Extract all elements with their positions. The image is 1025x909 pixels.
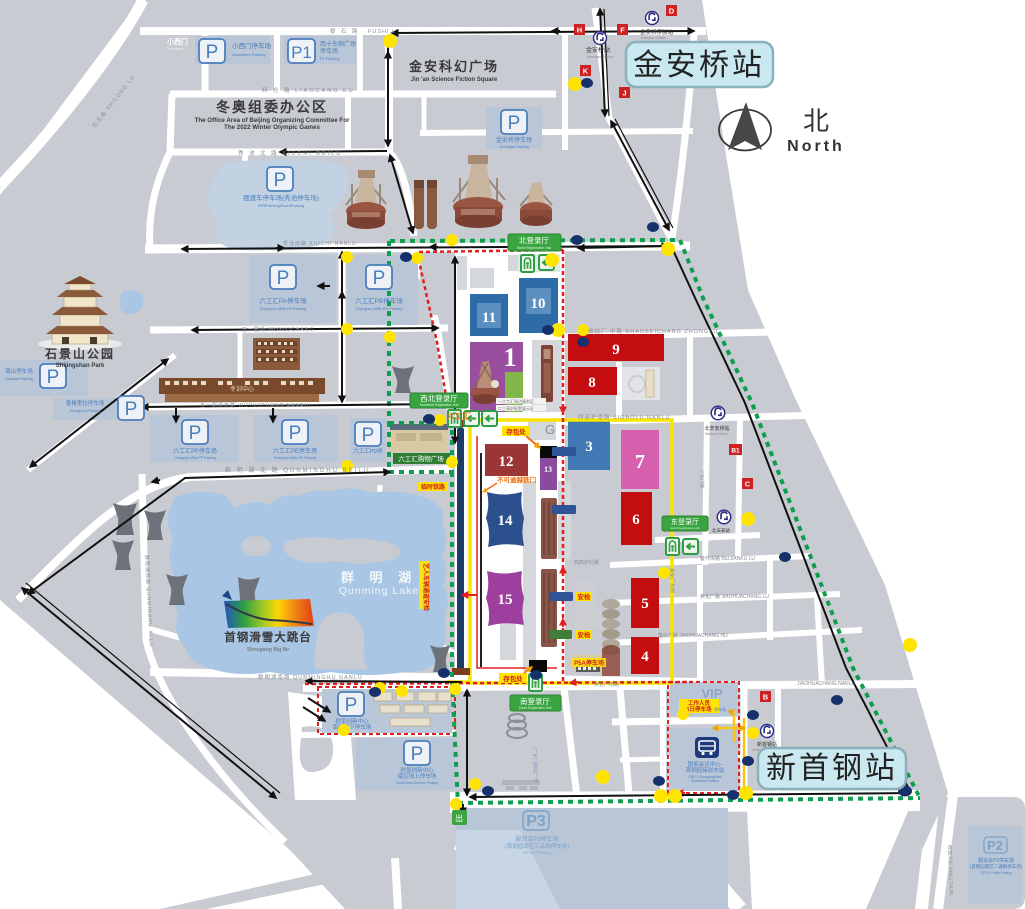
svg-text:焦化厂路 JIAOHUACHANG LU: 焦化厂路 JIAOHUACHANG LU (700, 593, 769, 600)
svg-text:P3: P3 (526, 813, 546, 830)
svg-text:金安桥站: 金安桥站 (586, 46, 610, 54)
svg-text:六工汇PA停车场: 六工汇PA停车场 (259, 296, 307, 305)
svg-text:南山停车场: 南山停车场 (5, 367, 33, 375)
svg-text:(首钢园南区二通钢停车场): (首钢园南区二通钢停车场) (970, 863, 1023, 870)
svg-text:B: B (763, 693, 769, 702)
svg-text:P2: P2 (987, 838, 1003, 853)
svg-text:P1: P1 (291, 43, 312, 62)
svg-text:首钢滑雪大跳台: 首钢滑雪大跳台 (224, 630, 312, 644)
svg-text:六工汇PB停车场: 六工汇PB停车场 (355, 296, 403, 305)
svg-text:Xiaoximen Parking: Xiaoximen Parking (232, 52, 265, 57)
svg-text:Beixinan Station: Beixinan Station (705, 432, 728, 436)
svg-text:Chang'an Mills PB Parking: Chang'an Mills PB Parking (355, 306, 402, 311)
svg-text:料 仓 路 LIAOCANG EU: 料 仓 路 LIAOCANG EU (262, 86, 355, 94)
svg-text:北辛安桥站: 北辛安桥站 (704, 425, 729, 432)
svg-text:Jinanqiao Shuttle: Jinanqiao Shuttle (640, 36, 666, 40)
svg-text:P5A停车场: P5A停车场 (574, 659, 604, 667)
svg-text:六工汇购物广场: 六工汇购物广场 (398, 454, 444, 463)
svg-text:14: 14 (498, 513, 514, 529)
svg-text:秀池南路 XIUCHI NANLU: 秀池南路 XIUCHI NANLU (283, 240, 357, 247)
svg-text:集价广路 JIAOHUACHANG HD: 集价广路 JIAOHUACHANG HD (658, 632, 728, 639)
svg-text:Chang'an Mills PA Parking: Chang'an Mills PA Parking (260, 306, 307, 311)
svg-text:五一剧场南路 WUYUJCHANG NANRU: 五一剧场南路 WUYUJCHANG NANRU (200, 402, 309, 409)
svg-text:South Area Outdoor Parking: South Area Outdoor Parking (396, 781, 439, 785)
svg-text:P1 Parking: P1 Parking (320, 56, 340, 61)
svg-text:南登录厅: 南登录厅 (520, 696, 550, 706)
svg-text:金安桥停车场: 金安桥停车场 (496, 136, 532, 144)
svg-text:The 2022 Winter Olympic Games: The 2022 Winter Olympic Games (224, 124, 320, 131)
svg-text:耐氢创新中心: 耐氢创新中心 (335, 717, 369, 725)
svg-text:首钢园接驳车站: 首钢园接驳车站 (686, 766, 725, 774)
svg-text:耐氢创新中心: 耐氢创新中心 (400, 766, 434, 774)
svg-text:焦化厂东街: 焦化厂东街 (668, 568, 676, 593)
svg-text:存包处: 存包处 (503, 674, 523, 683)
svg-text:1: 1 (504, 343, 517, 372)
svg-text:广东门南延广场: 广东门南延广场 (531, 748, 539, 783)
svg-text:烧结厂 中路 SHAOBEICHANG ZHONGLU: 烧结厂 中路 SHAOBEICHANG ZHONGLU (588, 327, 718, 335)
svg-text:G: G (545, 422, 555, 437)
svg-text:F: F (620, 26, 625, 35)
svg-text:秀 池 北 路 XIUCHI BEILU: 秀 池 北 路 XIUCHI BEILU (238, 149, 342, 157)
svg-text:四高炉南路 SIGAOLU NANLU: 四高炉南路 SIGAOLU NANLU (578, 413, 671, 421)
svg-text:6: 6 (632, 512, 640, 528)
svg-text:北登录厅: 北登录厅 (519, 235, 549, 245)
svg-text:1日停车场: 1日停车场 (686, 705, 712, 713)
svg-text:一六工汇周边服务区: 一六工汇周边服务区 (498, 398, 534, 404)
svg-text:西十东侧广场: 西十东侧广场 (320, 40, 356, 48)
svg-text:国家会议中心-: 国家会议中心- (688, 760, 723, 768)
svg-text:7: 7 (635, 451, 645, 473)
svg-text:Qunming Lake: Qunming Lake (339, 585, 419, 597)
svg-text:五一剧场 WUYUJCHANG: 五一剧场 WUYUJCHANG (242, 326, 314, 333)
svg-text:服贸会P2停车场: 服贸会P2停车场 (978, 857, 1014, 864)
svg-text:Shougang Big Air: Shougang Big Air (247, 647, 290, 653)
svg-text:4: 4 (641, 649, 649, 665)
svg-text:Nanshan Parking: Nanshan Parking (5, 377, 33, 381)
svg-text:CIFTIS Public Parking: CIFTIS Public Parking (980, 871, 1012, 875)
svg-text:Shangri-La Parking: Shangri-La Parking (70, 409, 101, 413)
svg-text:15: 15 (498, 592, 513, 608)
svg-text:金安桥站: 金安桥站 (633, 49, 765, 82)
svg-text:D: D (669, 7, 675, 16)
svg-text:黎 石 路: 黎 石 路 (330, 27, 360, 35)
svg-text:冬奥组委办公区: 冬奥组委办公区 (216, 99, 328, 115)
svg-text:群 明 湖: 群 明 湖 (341, 570, 417, 585)
svg-text:VIP: VIP (702, 686, 723, 701)
svg-text:艺人车辆通道安检: 艺人车辆通道安检 (422, 563, 430, 611)
svg-text:新首钢站: 新首钢站 (766, 752, 898, 785)
svg-text:北辛安站: 北辛安站 (712, 527, 730, 534)
svg-text:J: J (622, 89, 626, 98)
svg-text:临时铁路: 临时铁路 (421, 483, 446, 491)
svg-text:Jinanqiao Station: Jinanqiao Station (586, 55, 614, 59)
svg-text:小西门停车场: 小西门停车场 (232, 41, 272, 50)
svg-text:六工汇: 六工汇 (447, 411, 471, 421)
svg-text:(首钢园南区工品钢停车场): (首钢园南区工品钢停车场) (505, 842, 569, 850)
svg-text:存包处: 存包处 (506, 427, 526, 436)
svg-text:金安科幻广场: 金安科幻广场 (408, 59, 499, 74)
svg-text:北: 北 (803, 106, 829, 136)
svg-text:小西门: 小西门 (166, 37, 188, 46)
svg-text:金安桥停驳站: 金安桥停驳站 (640, 28, 674, 36)
svg-text:East Registration Hall: East Registration Hall (671, 526, 700, 530)
svg-text:冬训中心: 冬训中心 (230, 385, 254, 393)
svg-text:C: C (745, 480, 751, 489)
svg-text:安检: 安检 (578, 630, 592, 639)
svg-text:群明湖南路 QUNMINGHU NANLU: 群明湖南路 QUNMINGHU NANLU (258, 673, 363, 681)
svg-text:停车场: 停车场 (714, 706, 726, 712)
svg-text:服贸会P3停车场: 服贸会P3停车场 (515, 835, 558, 843)
svg-text:香格里拉停车场: 香格里拉停车场 (66, 399, 105, 407)
svg-text:东登录厅: 东登录厅 (671, 517, 699, 526)
svg-text:Northwest Registration Hall: Northwest Registration Hall (420, 403, 459, 407)
svg-text:Chang'an Mills PF Parking: Chang'an Mills PF Parking (174, 456, 216, 460)
svg-text:FUSHI L: FUSHI L (368, 29, 396, 35)
svg-text:The Office Area of Beijing Org: The Office Area of Beijing Organizing Co… (195, 117, 350, 124)
svg-text:8: 8 (588, 375, 596, 391)
svg-text:群 明 湖 北 路 QUNMINGHU BEILU: 群 明 湖 北 路 QUNMINGHU BEILU (225, 466, 370, 474)
svg-text:CIFTIS P3 Parking: CIFTIS P3 Parking (523, 851, 551, 855)
svg-text:North Registration Hall: North Registration Hall (517, 246, 551, 250)
svg-text:Chang'an Mills PE Parking: Chang'an Mills PE Parking (274, 456, 316, 460)
svg-text:Shijingshan Park: Shijingshan Park (56, 363, 105, 369)
svg-text:13: 13 (544, 465, 552, 474)
svg-text:10: 10 (531, 296, 546, 312)
svg-text:ShuttleBus Station: ShuttleBus Station (691, 779, 719, 783)
svg-text:B1: B1 (731, 448, 740, 455)
svg-text:South Registration Hall: South Registration Hall (519, 706, 552, 710)
svg-text:5: 5 (641, 596, 649, 612)
svg-text:备件库路 BEIJIANKU LU: 备件库路 BEIJIANKU LU (700, 555, 755, 562)
svg-text:Jin'anqiao Parking: Jin'anqiao Parking (499, 145, 528, 149)
svg-text:H: H (577, 26, 582, 35)
svg-text:南区地上停车场: 南区地上停车场 (398, 772, 437, 780)
svg-text:3: 3 (585, 439, 593, 455)
svg-text:石景山公园: 石景山公园 (44, 346, 115, 361)
svg-text:12: 12 (499, 454, 514, 470)
svg-text:出: 出 (455, 813, 463, 823)
svg-text:North: North (787, 138, 845, 155)
svg-text:工作人员: 工作人员 (688, 699, 711, 707)
svg-text:二三高炉配套展示区: 二三高炉配套展示区 (498, 405, 534, 411)
svg-text:西北登录厅: 西北登录厅 (420, 393, 458, 403)
svg-text:JIAOHUACHANG NANLU: JIAOHUACHANG NANLU (797, 681, 855, 687)
svg-text:摆渡车停车场(秀池停车场): 摆渡车停车场(秀池停车场) (243, 193, 319, 202)
svg-text:六工汇PF停车场: 六工汇PF停车场 (173, 447, 217, 455)
svg-text:K: K (583, 67, 589, 76)
svg-text:六工汇PE停车场: 六工汇PE停车场 (273, 447, 317, 455)
svg-text:停车场: 停车场 (320, 47, 338, 55)
svg-text:安检: 安检 (578, 592, 592, 601)
svg-text:11: 11 (482, 310, 496, 326)
svg-text:六工汇PD停: 六工汇PD停 (353, 447, 383, 455)
svg-text:Jin 'an Science Fiction Square: Jin 'an Science Fiction Square (411, 77, 498, 83)
svg-text:四高炉北路: 四高炉北路 (574, 559, 599, 566)
svg-text:不可逾越铁门: 不可逾越铁门 (497, 475, 537, 484)
svg-text:OPBParkingXiuchiParking: OPBParkingXiuchiParking (258, 203, 304, 208)
svg-text:焦化厂南路: 焦化厂南路 (594, 681, 619, 688)
svg-text:9: 9 (612, 342, 620, 358)
svg-text:Xiaoximen: Xiaoximen (167, 47, 183, 51)
